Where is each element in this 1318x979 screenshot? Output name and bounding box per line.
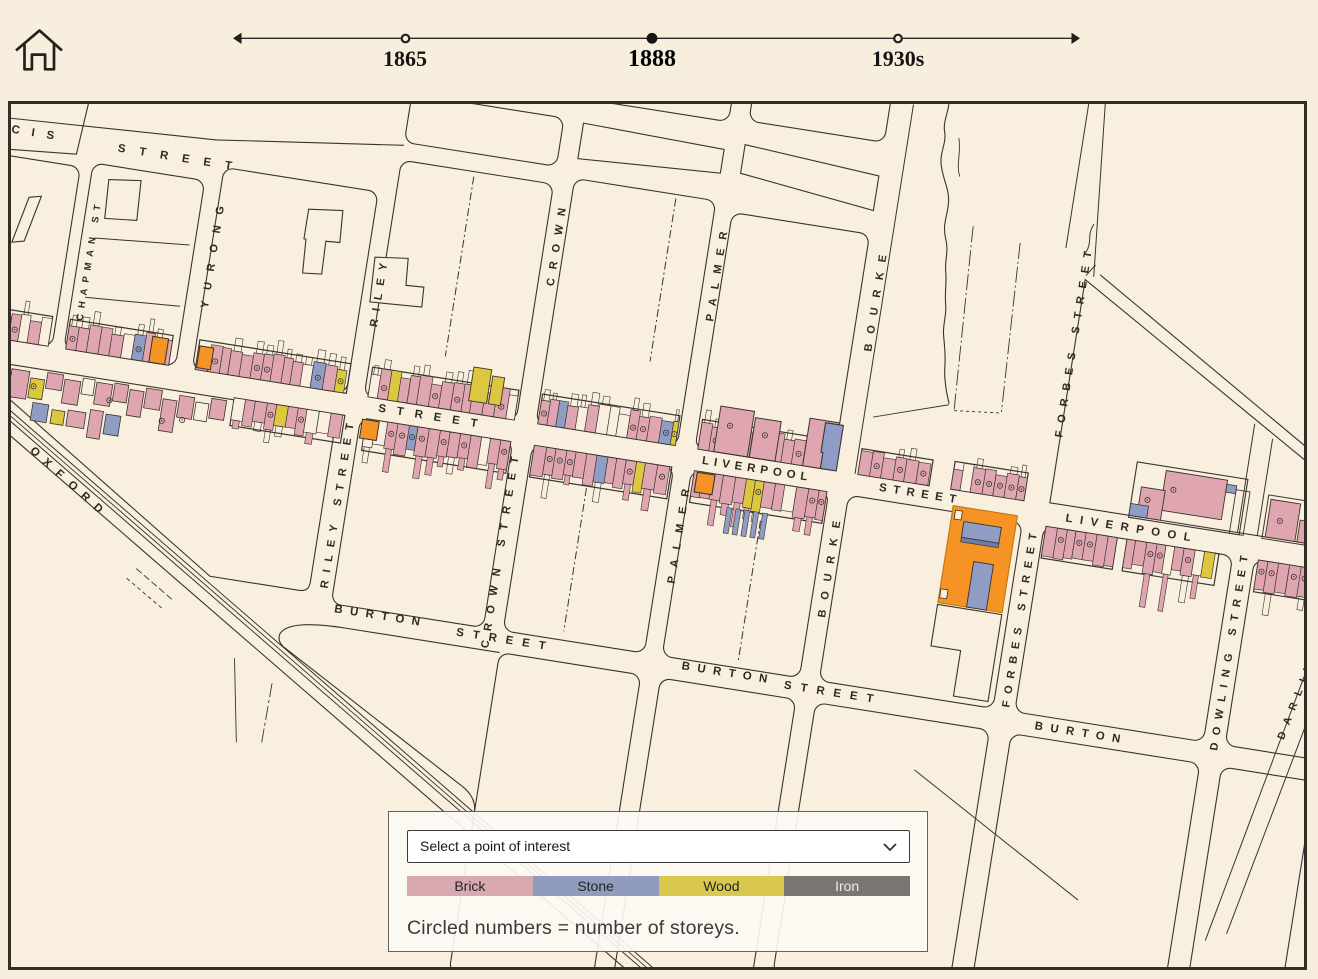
svg-text:CHAPMAN ST: CHAPMAN ST xyxy=(74,198,104,322)
svg-text:CROWN: CROWN xyxy=(545,198,571,287)
svg-text:STREET: STREET xyxy=(455,627,555,654)
svg-text:CIS: CIS xyxy=(11,124,67,144)
svg-text:YURONG: YURONG xyxy=(199,194,229,309)
svg-text:F: F xyxy=(53,467,66,481)
svg-text:BURTON: BURTON xyxy=(333,603,428,630)
svg-text:DARLING: DARLING xyxy=(1275,640,1304,741)
svg-text:BOURKE: BOURKE xyxy=(816,510,845,618)
svg-text:FORBES STREET: FORBES STREET xyxy=(1053,243,1096,439)
svg-text:BURTON: BURTON xyxy=(681,660,776,687)
svg-text:PALMER: PALMER xyxy=(704,222,731,322)
svg-text:O: O xyxy=(65,479,80,494)
svg-text:X: X xyxy=(40,456,54,470)
svg-text:BURTON: BURTON xyxy=(1034,720,1129,747)
svg-text:R: R xyxy=(78,490,93,505)
svg-text:D: D xyxy=(91,501,105,515)
svg-text:STREET: STREET xyxy=(878,482,963,507)
svg-text:BOURKE: BOURKE xyxy=(862,244,891,352)
